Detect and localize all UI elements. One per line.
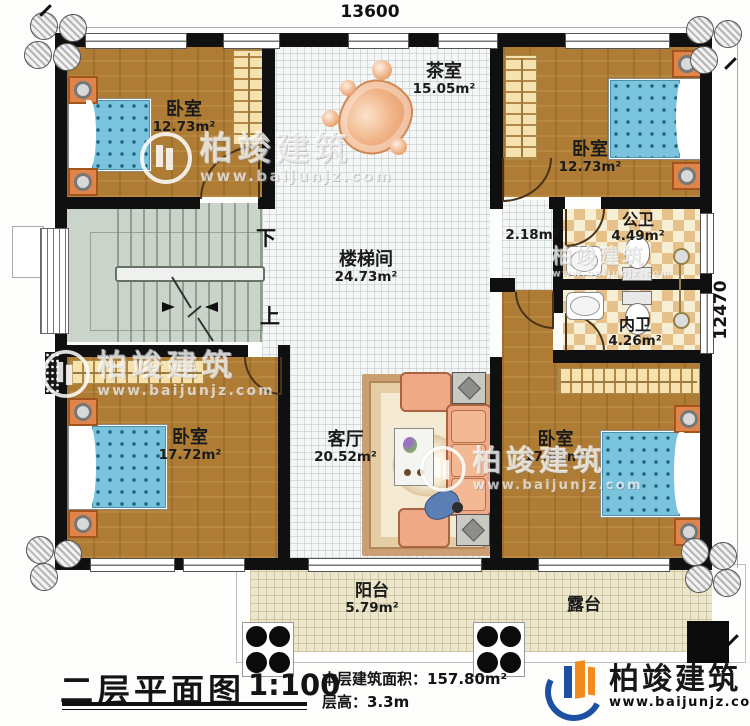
stairs-down-label: 下 <box>256 222 276 251</box>
room-label-stairwell: 楼梯间 24.73m² <box>314 250 418 285</box>
wall <box>480 558 538 570</box>
wardrobe <box>233 50 263 147</box>
wall <box>55 197 200 209</box>
room-name: 楼梯间 <box>314 250 418 270</box>
nightstand <box>68 398 98 426</box>
wall <box>490 278 515 292</box>
wall <box>278 33 348 47</box>
person-head <box>452 502 463 513</box>
room-label-terrace: 露台 <box>534 596 634 615</box>
logo-bar <box>564 666 572 698</box>
room-label-bedroom-bl: 卧室 17.72m² <box>140 428 240 463</box>
room-name: 卧室 <box>140 428 240 448</box>
floor-area-label: 本层建筑面积： <box>322 670 427 688</box>
room-name: 内卫 <box>590 316 680 334</box>
column <box>246 626 267 647</box>
column <box>269 626 290 647</box>
room-name: 卧室 <box>134 100 234 120</box>
bed-blanket <box>602 432 680 516</box>
corner-column <box>24 41 52 69</box>
corner-column <box>30 12 58 40</box>
sofa-cushion <box>451 410 486 443</box>
room-label-balcony: 阳台 5.79m² <box>320 582 424 616</box>
plan-stats: 本层建筑面积：157.80m² 层高：3.3m <box>322 668 507 713</box>
floor-height-line: 层高：3.3m <box>322 691 507 714</box>
window <box>700 213 714 274</box>
title-underline <box>62 709 307 710</box>
window <box>438 33 498 49</box>
floor-plan: 13600 12470 <box>0 0 750 726</box>
stone-decor <box>390 138 407 155</box>
floor-area-value: 157.80m² <box>427 670 507 688</box>
room-area: 24.73m² <box>314 270 418 285</box>
wall <box>553 290 563 313</box>
stairs-up-label: 上 <box>260 300 280 329</box>
nightstand <box>68 76 98 104</box>
room-name: 卧室 <box>503 430 608 450</box>
brand-name: 柏竣建筑 <box>609 664 750 696</box>
corner-column <box>681 538 709 566</box>
room-name: 客厅 <box>293 430 398 450</box>
armchair <box>400 372 452 412</box>
room-area: 17.72m² <box>140 448 240 463</box>
room-label-bedroom-br: 卧室 17.91m² <box>503 430 608 465</box>
room-area: 4.49m² <box>593 229 683 244</box>
side-table <box>452 372 486 404</box>
dimension-line-top <box>55 27 712 28</box>
nightstand <box>672 162 702 190</box>
room-area: 4.26m² <box>590 334 680 349</box>
corner-column <box>54 540 82 568</box>
window <box>223 33 280 49</box>
column <box>477 626 498 647</box>
wall <box>700 352 712 570</box>
window <box>85 33 187 49</box>
dimension-label-right: 12470 <box>711 277 731 343</box>
room-label-tea-room: 茶室 15.05m² <box>394 62 494 97</box>
brand-website: www.baijunjz.com <box>609 695 750 710</box>
wall <box>55 345 248 357</box>
corner-column <box>709 542 737 570</box>
sink <box>566 246 602 276</box>
room-name: 阳台 <box>320 582 424 601</box>
floor-height-label: 层高： <box>322 693 367 711</box>
brand-logo-icon <box>545 658 603 716</box>
stone-decor <box>340 80 356 96</box>
wardrobe <box>505 55 537 160</box>
room-area: 15.05m² <box>394 82 494 97</box>
bed-sheet <box>674 432 684 514</box>
stone-decor <box>372 60 392 80</box>
wall <box>553 350 712 363</box>
window <box>348 33 409 49</box>
logo-swoosh <box>537 655 610 726</box>
wall <box>549 197 565 209</box>
corner-tick <box>724 57 737 70</box>
corner-column <box>59 14 87 42</box>
table-cup <box>417 469 424 476</box>
logo-bar <box>588 667 595 696</box>
coffee-table <box>394 428 434 486</box>
table-flowers <box>403 437 417 453</box>
corner-column <box>686 16 714 44</box>
corner-column <box>690 46 718 74</box>
title-underline <box>62 702 307 706</box>
wall <box>262 33 275 209</box>
side-table <box>456 514 490 546</box>
column <box>500 626 521 647</box>
corner-column <box>714 20 742 48</box>
hallway-floor <box>502 200 553 290</box>
room-name: 露台 <box>534 596 634 615</box>
wall <box>601 197 712 209</box>
room-name: 茶室 <box>394 62 494 82</box>
room-label-ensuite-bathroom: 内卫 4.26m² <box>590 316 680 349</box>
room-area: 12.73m² <box>134 120 234 135</box>
wall <box>553 209 563 279</box>
room-area: 17.91m² <box>503 450 608 465</box>
sliding-door <box>308 558 482 572</box>
floor-height-value: 3.3m <box>367 693 409 711</box>
wall <box>185 33 223 47</box>
room-label-public-bathroom: 公卫 4.49m² <box>593 211 683 244</box>
window <box>40 228 69 334</box>
window <box>90 558 175 572</box>
corner-column <box>26 536 54 564</box>
stair-handrail <box>115 266 265 282</box>
room-area: 2.18m² <box>492 228 572 243</box>
room-name: 卧室 <box>540 140 640 160</box>
room-label-bedroom-tr: 卧室 12.73m² <box>540 140 640 175</box>
logo-bar <box>575 660 585 698</box>
wall <box>490 357 502 570</box>
room-label-bedroom-tl: 卧室 12.73m² <box>134 100 234 135</box>
wall <box>490 197 502 209</box>
window <box>183 558 245 572</box>
nightstand <box>68 510 98 538</box>
radiator <box>45 352 59 394</box>
wall <box>496 33 565 47</box>
shower-rail <box>679 260 681 316</box>
corner-column <box>713 569 741 597</box>
wall <box>407 33 438 47</box>
dimension-label-top: 13600 <box>320 2 420 22</box>
corner-column <box>685 565 713 593</box>
corner-column <box>53 43 81 71</box>
brand-logo: 柏竣建筑 www.baijunjz.com <box>545 658 750 716</box>
wardrobe <box>558 368 700 394</box>
column-pier <box>687 621 729 663</box>
floor-area-line: 本层建筑面积：157.80m² <box>322 668 507 691</box>
dimension-line-right <box>737 40 738 568</box>
shower-head <box>673 248 690 265</box>
wall <box>258 197 275 209</box>
sofa-cushion <box>451 444 486 477</box>
room-label-hallway: 2.18m² <box>492 228 572 243</box>
wardrobe <box>70 360 205 384</box>
stone-decor <box>322 110 339 127</box>
bed-sheet <box>676 80 686 156</box>
room-area: 12.73m² <box>540 160 640 175</box>
wall <box>243 558 308 570</box>
corner-column <box>30 563 58 591</box>
window <box>565 33 670 49</box>
toilet-tank <box>622 267 652 281</box>
room-area: 20.52m² <box>293 450 398 465</box>
room-area: 5.79m² <box>320 601 424 616</box>
window <box>538 558 670 572</box>
room-name: 公卫 <box>593 211 683 229</box>
nightstand <box>68 168 98 196</box>
table-cup <box>404 469 411 476</box>
room-label-living-room: 客厅 20.52m² <box>293 430 398 465</box>
